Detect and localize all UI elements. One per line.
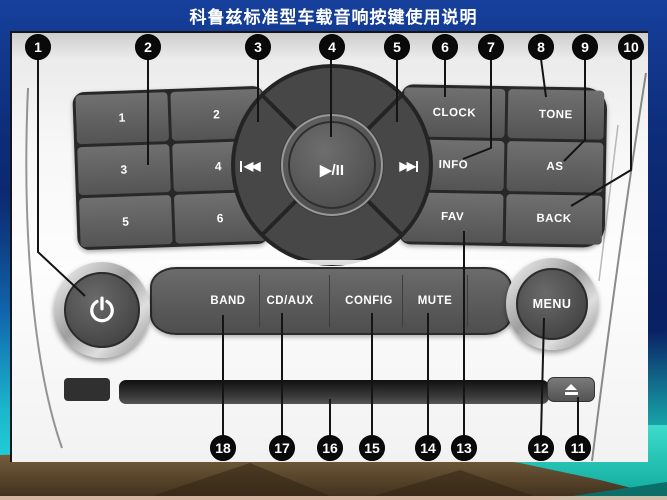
callout-2-number: 2 — [144, 39, 152, 55]
power-icon — [87, 295, 117, 325]
callout-10-number: 10 — [623, 39, 639, 55]
menu-knob: MENU — [506, 258, 598, 350]
callout-6: 6 — [432, 34, 458, 60]
callout-8-number: 8 — [537, 39, 545, 55]
callout-16-number: 16 — [322, 440, 338, 456]
callout-13: 13 — [451, 435, 477, 461]
info-label: INFO — [439, 159, 469, 172]
cd-slot-left-segment — [64, 378, 110, 401]
next-track-button: ▶▶ — [384, 156, 434, 176]
callout-1-number: 1 — [34, 39, 42, 55]
callout-15-number: 15 — [364, 440, 380, 456]
callout-3-number: 3 — [254, 39, 262, 55]
eject-button — [547, 377, 595, 402]
callout-18: 18 — [210, 435, 236, 461]
callout-6-number: 6 — [441, 39, 449, 55]
slide-title-bar: 科鲁兹标准型车载音响按键使用说明 — [0, 0, 667, 31]
page-title: 科鲁兹标准型车载音响按键使用说明 — [190, 3, 478, 28]
band-divider — [467, 275, 468, 327]
callout-18-number: 18 — [215, 440, 231, 456]
menu-knob-face: MENU — [516, 268, 588, 340]
callout-16: 16 — [317, 435, 343, 461]
callout-3: 3 — [245, 34, 271, 60]
callout-1: 1 — [25, 34, 51, 60]
preset-button-3: 3 — [77, 144, 170, 196]
tone-label: TONE — [539, 108, 573, 121]
callout-17-number: 17 — [274, 440, 290, 456]
play-pause-button: ▶/II — [292, 159, 372, 181]
menu-label: MENU — [533, 297, 572, 311]
callout-11-number: 11 — [571, 440, 586, 456]
eject-icon — [565, 384, 577, 390]
callout-14: 14 — [415, 435, 441, 461]
config-button: CONFIG — [345, 295, 393, 307]
callout-14-number: 14 — [420, 440, 436, 456]
callout-7: 7 — [478, 34, 504, 60]
callout-9: 9 — [572, 34, 598, 60]
clock-label: CLOCK — [433, 106, 477, 119]
preset-label-1: 1 — [118, 111, 125, 125]
band-divider — [259, 275, 260, 327]
as-label: AS — [546, 161, 563, 173]
callout-10: 10 — [618, 34, 644, 60]
bottom-button-band: BAND CD/AUX CONFIG MUTE — [150, 267, 512, 335]
callout-11: 11 — [565, 435, 591, 461]
next-track-icon: ▶▶ — [400, 160, 414, 172]
preset-label-6: 6 — [216, 211, 223, 225]
band-divider — [402, 275, 403, 327]
preset-button-1: 1 — [75, 92, 168, 144]
preset-label-5: 5 — [122, 214, 129, 228]
callout-4: 4 — [319, 34, 345, 60]
back-button: BACK — [506, 194, 603, 245]
callout-9-number: 9 — [581, 39, 589, 55]
play-pause-icon: ▶/II — [320, 161, 344, 179]
tone-button: TONE — [507, 89, 604, 140]
fav-label: FAV — [441, 211, 464, 223]
back-label: BACK — [536, 213, 571, 226]
callout-17: 17 — [269, 435, 295, 461]
preset-label-3: 3 — [120, 163, 127, 177]
band-divider — [329, 275, 330, 327]
callout-13-number: 13 — [456, 440, 472, 456]
power-knob-face — [64, 272, 140, 348]
next-track-bar-icon — [416, 161, 419, 172]
radio-panel-photo: 1 2 3 4 5 6 CLOCK TONE INFO AS FAV BACK — [10, 31, 648, 462]
cd-aux-button: CD/AUX — [266, 295, 313, 307]
callout-5-number: 5 — [393, 39, 401, 55]
callout-5: 5 — [384, 34, 410, 60]
prev-track-icon: ◀◀ — [244, 160, 258, 172]
preset-label-4: 4 — [215, 159, 222, 173]
cd-slot — [119, 380, 549, 404]
callout-4-number: 4 — [328, 39, 336, 55]
mute-button: MUTE — [418, 295, 453, 307]
eject-icon-bar — [565, 392, 578, 395]
callout-12-number: 12 — [533, 440, 549, 456]
callout-7-number: 7 — [487, 39, 495, 55]
band-button: BAND — [210, 295, 245, 307]
callout-12: 12 — [528, 435, 554, 461]
callout-15: 15 — [359, 435, 385, 461]
band-highlight — [157, 260, 507, 265]
preset-button-5: 5 — [79, 195, 172, 247]
slide: 科鲁兹标准型车载音响按键使用说明 1 2 3 4 5 6 CLOCK TONE … — [0, 0, 667, 500]
callout-2: 2 — [135, 34, 161, 60]
prev-track-bar-icon — [240, 161, 243, 172]
callout-8: 8 — [528, 34, 554, 60]
previous-track-button: ◀◀ — [224, 156, 274, 176]
power-volume-knob — [54, 262, 150, 358]
preset-label-2: 2 — [213, 108, 220, 122]
as-button: AS — [506, 141, 603, 192]
